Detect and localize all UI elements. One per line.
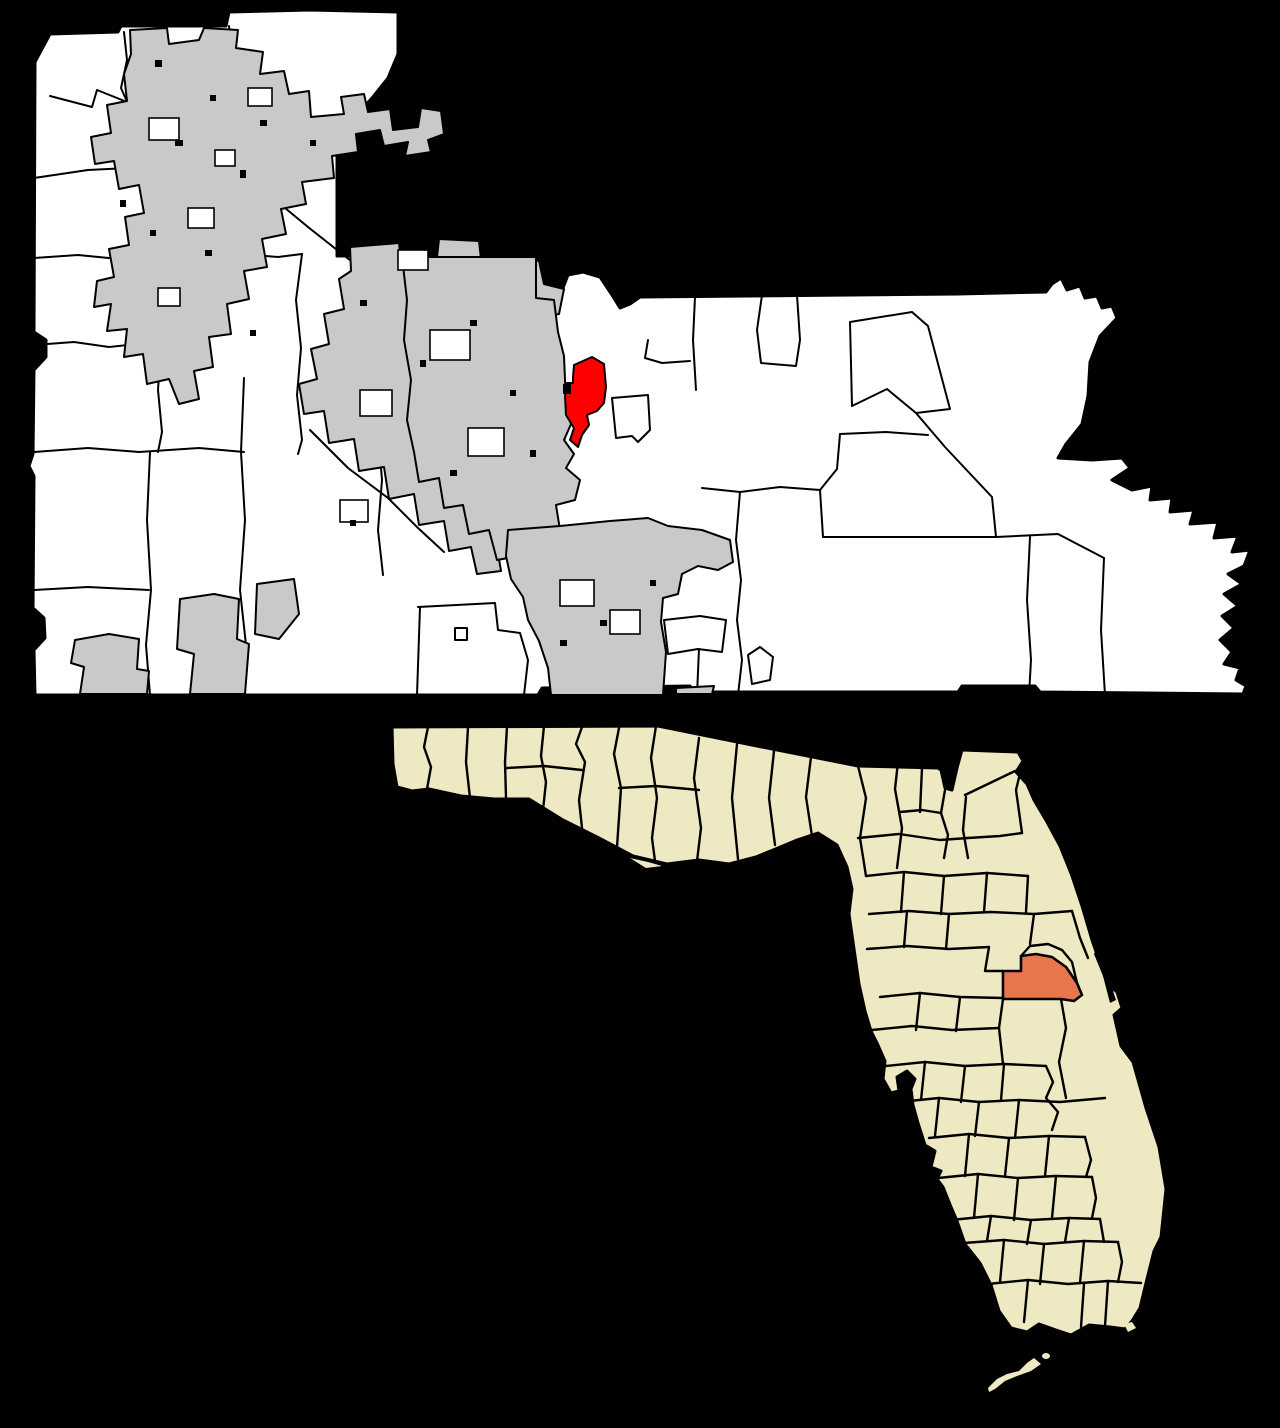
urban-speckle bbox=[360, 300, 367, 306]
urban-speckle bbox=[310, 140, 316, 146]
urban-speckle bbox=[530, 450, 536, 457]
urban-hole bbox=[149, 118, 179, 140]
urban-speckle bbox=[560, 640, 567, 646]
urban-speckle bbox=[175, 140, 183, 146]
urban-hole bbox=[188, 208, 214, 228]
highlighted-place-notch bbox=[563, 384, 571, 394]
urban-hole bbox=[215, 150, 235, 166]
urban-hole bbox=[430, 330, 470, 360]
urban-speckle bbox=[260, 120, 267, 126]
urban-speckle bbox=[510, 390, 516, 396]
urban-hole bbox=[248, 88, 272, 106]
urban-speckle bbox=[350, 520, 356, 526]
urban-hole bbox=[398, 250, 428, 270]
urban-hole bbox=[158, 288, 180, 306]
urban-speckle bbox=[150, 230, 156, 236]
urban-speckle bbox=[120, 200, 126, 207]
urban-speckle bbox=[650, 580, 656, 586]
urban-speckle bbox=[450, 470, 457, 476]
urban-speckle bbox=[240, 170, 246, 178]
urban-hole bbox=[560, 580, 594, 606]
urban-speckle bbox=[250, 330, 256, 336]
urban-speckle bbox=[600, 620, 607, 626]
locator-map-figure bbox=[0, 0, 1280, 1428]
urban-speckle bbox=[155, 60, 162, 67]
urban-hole bbox=[360, 390, 392, 416]
urban-hole bbox=[610, 610, 640, 634]
urban-speckle bbox=[205, 250, 212, 256]
urban-hole bbox=[340, 500, 368, 522]
urban-hole bbox=[468, 428, 504, 456]
urban-area bbox=[676, 686, 714, 694]
key-islet bbox=[1042, 1353, 1050, 1359]
urban-speckle bbox=[470, 320, 477, 326]
urban-speckle bbox=[420, 360, 426, 367]
urban-speckle bbox=[210, 95, 216, 101]
urban-area bbox=[71, 634, 149, 694]
